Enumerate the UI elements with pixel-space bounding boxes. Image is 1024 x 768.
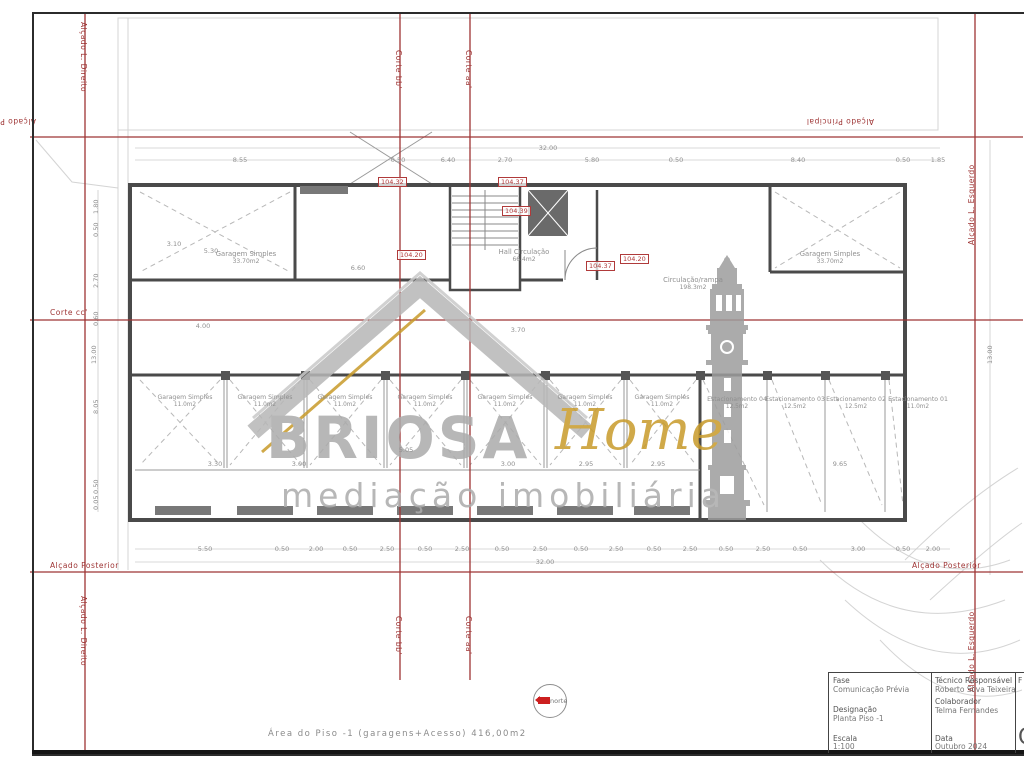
north-label: norte	[550, 697, 567, 705]
north-arrow-body	[538, 697, 550, 704]
data-value: Outubro 2024	[935, 742, 987, 751]
tecnico-label: Técnico Responsável	[935, 676, 1012, 685]
floor-area-note: Área do Piso -1 (garagens+Acesso) 416,00…	[268, 729, 527, 739]
designacao-value: Planta Piso -1	[833, 714, 884, 723]
north-arrow: norte	[533, 684, 567, 718]
colaborador-label: Colaborador	[935, 697, 981, 706]
sheet-ref-big: C	[1018, 725, 1024, 750]
escala-value: 1:100	[833, 742, 855, 751]
fase-label: Fase	[833, 676, 850, 685]
drawing-sheet: BRIOSA Home mediação imobiliária Alçado …	[0, 0, 1024, 768]
title-block: Fase Comunicação Prévia Designação Plant…	[828, 672, 1024, 753]
colaborador-value: Telma Fernandes	[935, 706, 998, 715]
sheet-ref-label: F	[1018, 676, 1022, 685]
tecnico-value: Roberto Silva Teixeira	[935, 685, 1016, 694]
section-label: Alçado Principal	[0, 117, 36, 126]
fase-value: Comunicação Prévia	[833, 685, 909, 694]
sheet-border	[32, 12, 1024, 756]
designacao-label: Designação	[833, 705, 877, 714]
titleblock-divider	[931, 673, 932, 753]
